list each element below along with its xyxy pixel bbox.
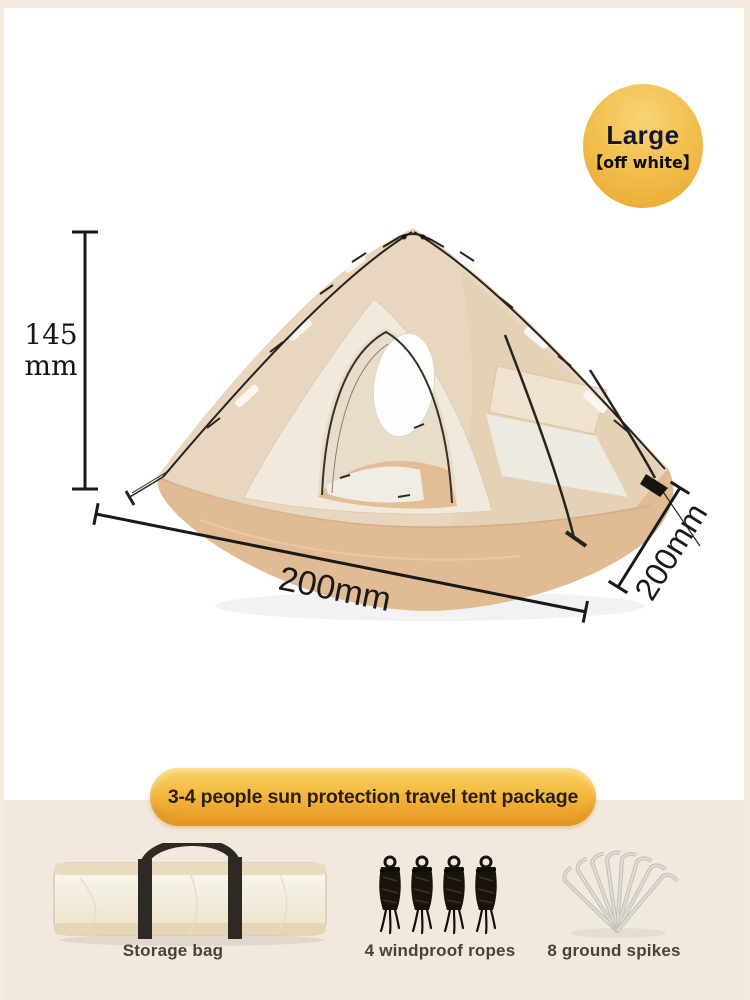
tent-hub-knob — [421, 235, 426, 240]
spikes-fan — [561, 852, 678, 940]
windproof-ropes-image — [368, 853, 518, 943]
tent-hub-knob — [402, 235, 407, 240]
height-unit: mm — [24, 351, 78, 382]
size-badge: Large 【off white】 — [583, 84, 703, 208]
height-value: 145 — [24, 320, 78, 351]
variant-label: 【off white】 — [587, 155, 699, 171]
package-title: 3-4 people sun protection travel tent pa… — [168, 786, 578, 809]
storage-bag-label: Storage bag — [63, 941, 283, 961]
ground-spikes-label: 8 ground spikes — [504, 941, 724, 961]
height-dimension-label: 145 mm — [24, 320, 78, 382]
rope-hanks — [379, 857, 496, 933]
package-banner: 3-4 people sun protection travel tent pa… — [150, 768, 596, 826]
ground-spikes-image — [545, 843, 695, 940]
storage-bag-image — [40, 843, 340, 948]
product-detail-image: 200mm 200mm 145 mm Large 【off white】 3-4… — [0, 0, 750, 1000]
size-label: Large — [606, 122, 679, 148]
